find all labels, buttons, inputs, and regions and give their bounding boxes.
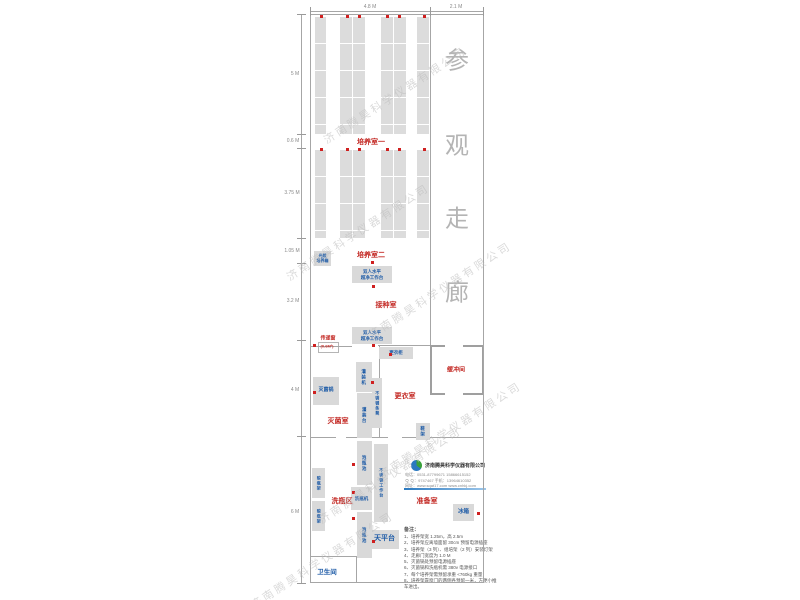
- equipment-box: 晾瓶架: [312, 468, 325, 498]
- wall-segment: [378, 345, 430, 346]
- wall-segment: [301, 14, 302, 583]
- floor-plan-canvas: 缓冲间 备注： 1、培养架宽 1.25m，高 2.5m2、培养架应离墙面留 30…: [0, 0, 800, 600]
- equipment-box: 灭菌锅: [313, 377, 339, 405]
- marker-dot: [352, 463, 355, 466]
- note-item: 2、培养架应离墙面留 30cm 预留电源插座: [404, 540, 500, 546]
- corridor-title-char: 走: [445, 199, 469, 234]
- room-label: 准备室: [417, 496, 438, 506]
- culture-rack: [315, 150, 326, 238]
- marker-dot: [423, 15, 426, 18]
- culture-rack: [340, 150, 352, 238]
- marker-dot: [477, 512, 480, 515]
- dimension-label: 2.1 M: [450, 4, 463, 10]
- marker-dot: [352, 517, 355, 520]
- ruler-tick: [483, 7, 484, 16]
- contact-divider: [404, 488, 486, 490]
- corridor-title-char: 观: [445, 126, 469, 161]
- marker-dot: [358, 148, 361, 151]
- ruler-tick: [297, 134, 306, 135]
- marker-dot: [313, 391, 316, 394]
- marker-dot: [371, 261, 374, 264]
- marker-dot: [346, 148, 349, 151]
- ruler-tick: [297, 14, 306, 15]
- marker-dot: [358, 15, 361, 18]
- ruler-tick: [297, 340, 306, 341]
- marker-dot: [320, 15, 323, 18]
- marker-dot: [398, 148, 401, 151]
- ruler-tick: [430, 7, 431, 16]
- equipment-box: 灌装机: [356, 362, 372, 392]
- room-label: 培养室一: [357, 137, 385, 147]
- wall-segment: [310, 11, 483, 12]
- watermark-text: 济南腾昊科学仪器有限公司: [365, 238, 515, 343]
- room-label: 灭菌室: [328, 416, 349, 426]
- door-opening: [445, 343, 463, 347]
- dimension-label: 3.75 M: [284, 190, 299, 196]
- room-label: (0.6M²): [321, 344, 334, 349]
- dimension-label: 4.8 M: [364, 4, 377, 10]
- door-opening: [336, 436, 346, 439]
- dimension-label: 6 M: [291, 509, 299, 515]
- door-opening: [388, 436, 402, 439]
- marker-dot: [346, 15, 349, 18]
- room-label: 培养室二: [357, 250, 385, 260]
- wall-segment: [356, 556, 357, 583]
- ruler-tick: [297, 238, 306, 239]
- wall-segment: [310, 582, 484, 583]
- marker-dot: [320, 148, 323, 151]
- notes-title: 备注：: [404, 526, 500, 533]
- wall-segment: [483, 14, 484, 583]
- marker-dot: [389, 353, 392, 356]
- ruler-tick: [297, 436, 306, 437]
- marker-dot: [372, 344, 375, 347]
- ruler-tick: [310, 7, 311, 16]
- equipment-box: 更衣柜: [379, 347, 413, 359]
- note-item: 3、培养架（3 列）、组培架（2 列）安装灯架: [404, 547, 500, 553]
- room-label: 接种室: [376, 300, 397, 310]
- equipment-box: 灌装台: [357, 393, 372, 438]
- dimension-label: 4 M: [291, 387, 299, 393]
- culture-rack: [381, 17, 393, 134]
- dimension-label: 3.2 M: [287, 298, 300, 304]
- marker-dot: [371, 381, 374, 384]
- equipment-box: 不锈钢条凳: [372, 378, 382, 428]
- dimension-label: 0.6 M: [287, 138, 300, 144]
- company-name: 济南腾昊科学仪器有限公司: [425, 462, 485, 469]
- wall-segment: [310, 14, 484, 15]
- note-item: 8、培养架靠窗门的两侧各预留一米，方便小推车进出。: [404, 578, 500, 591]
- dimension-label: 1.05 M: [284, 248, 299, 254]
- ruler-tick: [297, 148, 306, 149]
- notes-block: 备注： 1、培养架宽 1.25m，高 2.5m2、培养架应离墙面留 30cm 预…: [404, 526, 500, 591]
- marker-dot: [423, 148, 426, 151]
- door-opening: [445, 391, 463, 395]
- marker-dot: [372, 540, 375, 543]
- marker-dot: [313, 344, 316, 347]
- room-label: 更衣室: [395, 391, 416, 401]
- room-label: 传递窗: [320, 335, 335, 342]
- dimension-label: 5 M: [291, 71, 299, 77]
- marker-dot: [386, 15, 389, 18]
- culture-rack: [394, 17, 406, 134]
- marker-dot: [386, 148, 389, 151]
- room-label-buffer: 缓冲间: [447, 365, 465, 374]
- marker-dot: [372, 285, 375, 288]
- marker-dot: [398, 15, 401, 18]
- equipment-box: 冰箱: [453, 504, 474, 521]
- wall-segment: [310, 14, 311, 583]
- culture-rack: [315, 17, 326, 134]
- equipment-box: 双人水平 超净工作台: [352, 266, 392, 283]
